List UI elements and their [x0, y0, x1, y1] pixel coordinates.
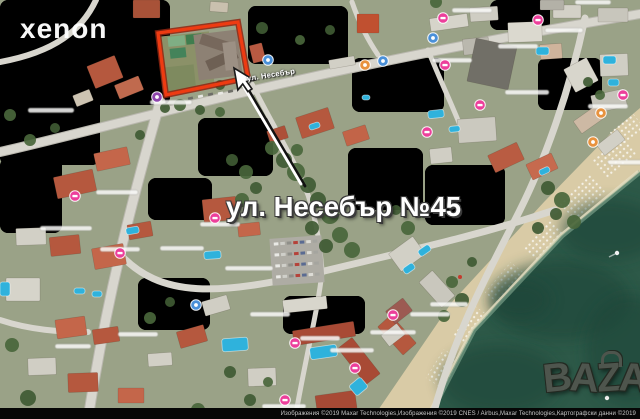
map-pin-info: [191, 300, 202, 311]
map-pin-hotel: [438, 13, 449, 24]
map-pin-info: [428, 33, 439, 44]
map-pin-hotel: [115, 248, 126, 259]
bazar-watermark-logo: BAZAR: [543, 358, 640, 398]
map-pin-hotel: [388, 310, 399, 321]
bazar-letter: B: [541, 357, 572, 400]
map-pin-hotel: [350, 363, 361, 374]
agency-watermark: xenon: [20, 13, 107, 45]
map-pin-food: [588, 137, 599, 148]
map-pin-food: [360, 60, 371, 71]
map-pin-hotel: [618, 90, 629, 101]
attribution-bar: Изображения ©2019 Maxar Technologies,Изо…: [0, 408, 640, 419]
map-pin-food: [596, 108, 607, 119]
map-attribution-text: Изображения ©2019 Maxar Technologies,Изо…: [281, 411, 640, 417]
map-pin-hotel: [290, 338, 301, 349]
map-pin-hotel: [280, 395, 291, 406]
map-pin-other: [152, 92, 163, 103]
address-annotation: ул. Несебър №45: [226, 191, 461, 223]
map-pin-hotel: [475, 100, 486, 111]
map-pin-hotel: [440, 60, 451, 71]
shopping-bag-handle-icon: [601, 351, 622, 367]
map-pin-info: [378, 56, 389, 67]
map-pin-hotel: [533, 15, 544, 26]
bazar-letter: A: [569, 357, 599, 399]
map-pin-hotel: [210, 213, 221, 224]
map-pin-hotel: [422, 127, 433, 138]
map-pin-info: [263, 55, 274, 66]
map-pin-hotel: [70, 191, 81, 202]
listing-photo: ул. Несебър ул. Несебър №45 xenon BAZAR …: [0, 0, 640, 419]
